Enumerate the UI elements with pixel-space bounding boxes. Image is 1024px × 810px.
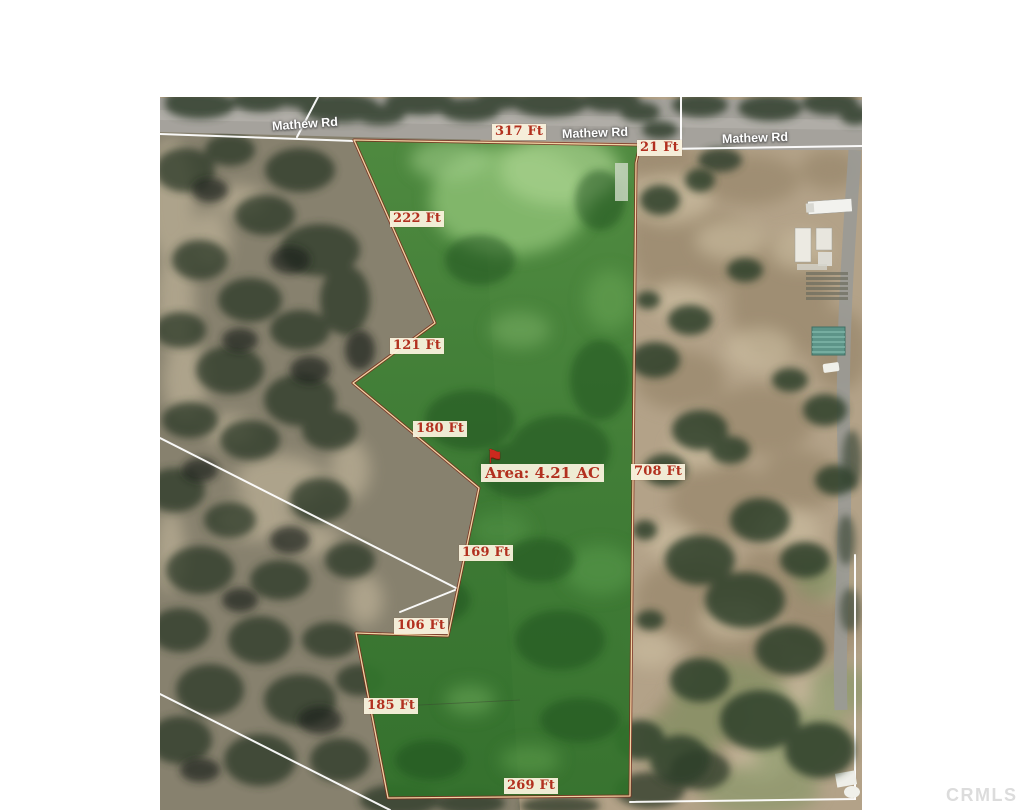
listing-map-image: Mathew Rd Mathew Rd Mathew Rd 317 Ft 21 … [0,0,1024,810]
structure-in-parcel [615,163,628,201]
map-terrain [145,88,870,810]
building [816,228,832,250]
structure [844,786,860,798]
rv-trailer [808,198,853,214]
shed [797,264,827,270]
building [795,228,811,262]
greenhouse [812,327,845,355]
aerial-map-canvas [0,0,1024,810]
building [818,252,832,266]
rv-cab [806,203,815,213]
